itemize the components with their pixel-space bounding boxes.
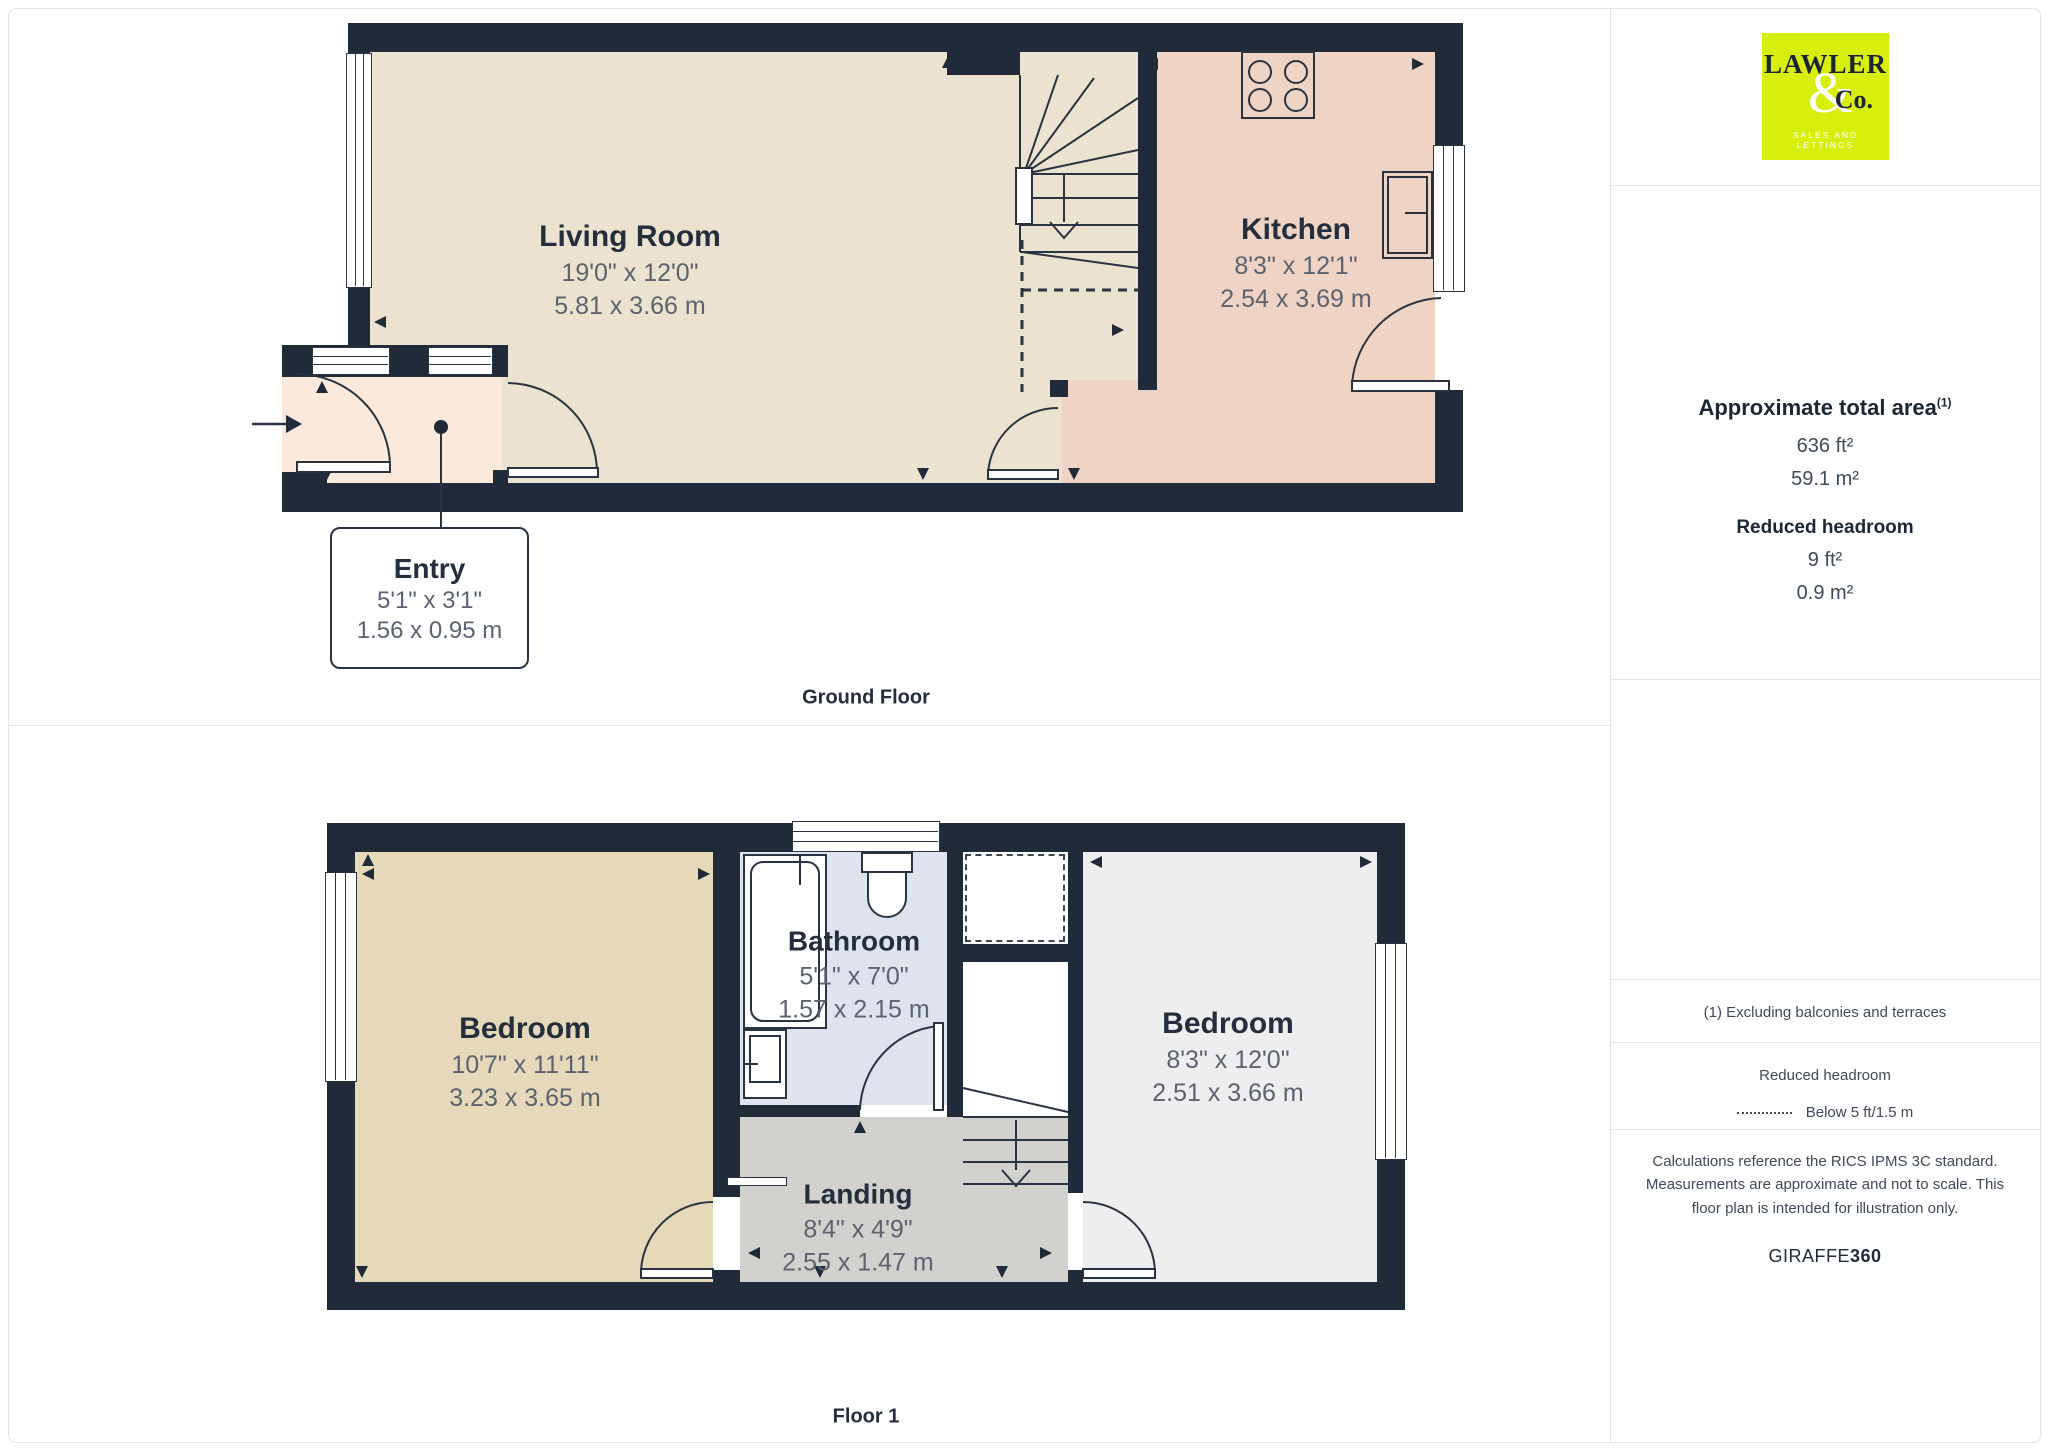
living-room-area-stairs	[1062, 52, 1138, 380]
f1-bed-left-door-pier	[713, 1270, 740, 1282]
bedroom-left-label: Bedroom 10'7" x 11'11" 3.23 x 3.65 m	[449, 1009, 600, 1115]
f1-bed-right-door-pier	[1068, 1270, 1083, 1282]
kitchen-area-lower	[1062, 380, 1157, 483]
total-area-m: 59.1 m²	[1610, 468, 2040, 491]
floors-divider	[8, 725, 1610, 726]
gf-stair-head	[947, 52, 1020, 75]
footnote: (1) Excluding balconies and terraces	[1640, 1001, 2010, 1024]
sidebar-border	[1611, 1129, 2040, 1130]
total-area-heading: Approximate total area(1)	[1610, 395, 2040, 421]
reduced-headroom-heading: Reduced headroom	[1610, 517, 2040, 539]
kitchen-label: Kitchen 8'3" x 12'1" 2.54 x 3.69 m	[1220, 210, 1371, 316]
sidebar-border	[1611, 979, 2040, 980]
f1-partition-bed-bath	[713, 852, 740, 1105]
f1-rooflight-band	[963, 944, 1083, 962]
sidebar-border	[1611, 679, 2040, 680]
gf-door-pier	[493, 470, 508, 483]
landing-label: Landing 8'4" x 4'9" 2.55 x 1.47 m	[782, 1177, 933, 1280]
reduced-headroom-m: 0.9 m²	[1610, 582, 2040, 605]
bedroom-right-label: Bedroom 8'3" x 12'0" 2.51 x 3.66 m	[1152, 1004, 1303, 1110]
landing-rail	[727, 1177, 787, 1186]
gf-partition-kitchen	[1138, 52, 1157, 390]
living-room-window	[346, 53, 372, 288]
sidebar-border	[1611, 1042, 2040, 1043]
rooflight-void	[965, 854, 1065, 942]
bedroom-right-window	[1375, 943, 1407, 1160]
bathroom-label: Bathroom 5'1" x 7'0" 1.57 x 2.15 m	[778, 924, 929, 1027]
gf-wall-top	[348, 23, 1463, 52]
legend: Reduced headroom Below 5 ft/1.5 m	[1640, 1064, 2010, 1125]
entry-label: Entry 5'1" x 3'1" 1.56 x 0.95 m	[330, 527, 529, 669]
legend-heading: Reduced headroom	[1640, 1064, 2010, 1087]
floor-1-title: Floor 1	[833, 1406, 900, 1429]
gf-porch-bottom-corner	[282, 472, 327, 512]
sidebar-divider	[1610, 8, 1611, 1442]
ground-floor-title: Ground Floor	[802, 687, 930, 710]
living-room-label: Living Room 19'0" x 12'0" 5.81 x 3.66 m	[539, 217, 721, 323]
kitchen-window	[1433, 145, 1465, 292]
sidebar-border	[1611, 185, 2040, 186]
f1-bathroom-right	[947, 852, 963, 1117]
entry-window-1	[312, 347, 390, 375]
legend-label: Below 5 ft/1.5 m	[1806, 1101, 1914, 1124]
total-area-ft: 636 ft²	[1610, 435, 2040, 458]
logo-tagline: SALES AND LETTINGS	[1762, 130, 1889, 150]
lawler-logo: & LAWLER Co. SALES AND LETTINGS	[1762, 33, 1889, 160]
bedroom-left-window	[325, 872, 357, 1082]
gf-wall-bottom	[327, 483, 1463, 512]
giraffe360-brand: GIRAFFE360	[1610, 1246, 2040, 1267]
gf-kitchen-door-stub	[1050, 380, 1068, 397]
entry-window-2	[428, 347, 493, 375]
disclaimer: Calculations reference the RICS IPMS 3C …	[1640, 1150, 2010, 1220]
footnote-ref: (1)	[1937, 396, 1952, 410]
f1-bathroom-bottom	[713, 1105, 860, 1117]
logo-name: LAWLER	[1762, 49, 1889, 80]
dotted-line-icon	[1737, 1112, 1792, 1114]
reduced-headroom-ft: 9 ft²	[1610, 549, 2040, 572]
floorplan-page: Living Room 19'0" x 12'0" 5.81 x 3.66 m …	[0, 0, 2048, 1448]
f1-wall-bottom	[327, 1282, 1405, 1310]
entry-area	[282, 377, 502, 483]
bathroom-window	[792, 821, 940, 852]
f1-stair-bedroom-wall	[1068, 852, 1083, 1193]
total-area-block: Approximate total area(1) 636 ft² 59.1 m…	[1610, 395, 2040, 615]
logo-co: Co.	[1835, 85, 1873, 115]
